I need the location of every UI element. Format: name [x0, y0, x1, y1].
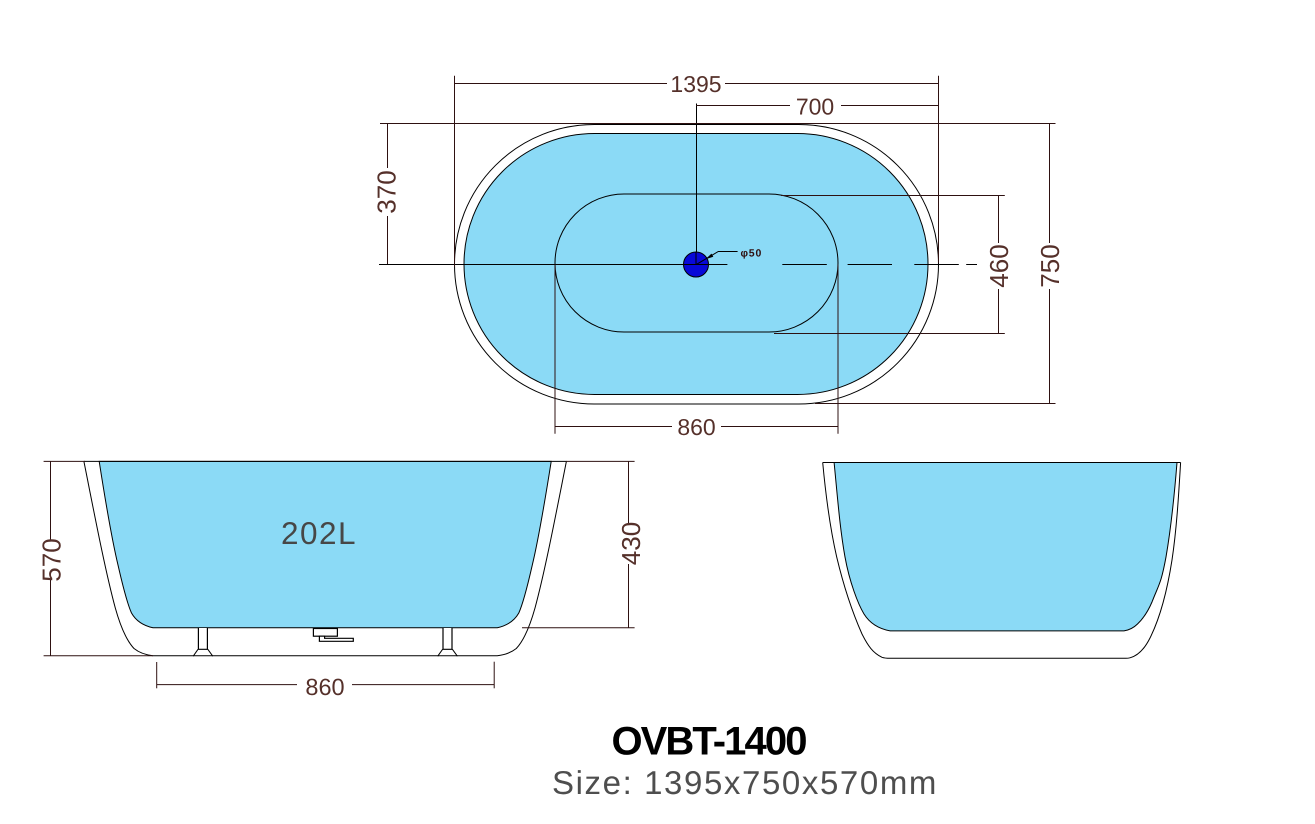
- svg-text:1395: 1395: [670, 71, 721, 97]
- svg-text:460: 460: [984, 244, 1014, 287]
- svg-text:202L: 202L: [281, 515, 357, 551]
- svg-text:φ50: φ50: [741, 248, 763, 260]
- svg-text:570: 570: [37, 538, 67, 581]
- svg-text:430: 430: [616, 522, 646, 565]
- svg-text:OVBT-1400: OVBT-1400: [611, 720, 806, 764]
- svg-text:Size: 1395x750x570mm: Size: 1395x750x570mm: [552, 764, 938, 801]
- svg-text:750: 750: [1035, 244, 1065, 287]
- svg-text:860: 860: [677, 414, 715, 440]
- svg-text:370: 370: [372, 170, 402, 213]
- svg-text:700: 700: [796, 94, 834, 120]
- svg-text:860: 860: [305, 674, 344, 700]
